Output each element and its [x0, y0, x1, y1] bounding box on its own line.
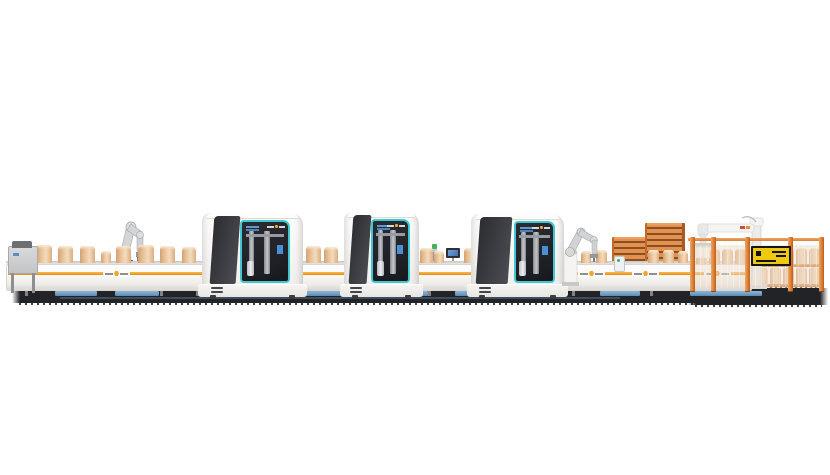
- machine-brand-mark: [267, 225, 285, 228]
- control-screen: [396, 244, 404, 255]
- tool-column: [533, 232, 539, 274]
- brand-mark-conveyor: [632, 270, 659, 277]
- blue-bin: [55, 291, 97, 296]
- machine-foot: [479, 295, 485, 299]
- product-box: [58, 246, 73, 263]
- product-box: [101, 251, 111, 263]
- interior-logo: [246, 226, 259, 231]
- cnc-machine: [202, 213, 303, 297]
- gantry-beam: [519, 235, 550, 238]
- product-box: [36, 245, 52, 263]
- operator-monitor: [446, 248, 460, 258]
- vent-slot: [350, 291, 362, 293]
- brand-hexagon-icon: [114, 271, 119, 276]
- cobot-gripper: [590, 254, 598, 258]
- machine-foot: [352, 295, 358, 299]
- warning-sign-pictogram: [756, 251, 761, 256]
- machine-brand-mark: [532, 226, 550, 229]
- brand-bar: [532, 227, 539, 229]
- monitor-screen: [448, 250, 458, 256]
- machine-window: [514, 221, 555, 283]
- machine-dark-panel: [476, 217, 512, 284]
- fence-mesh-panel: [792, 245, 819, 288]
- tool-column: [264, 231, 270, 274]
- brand-bar: [634, 273, 642, 275]
- brand-bar: [387, 225, 394, 227]
- machine-foot: [405, 295, 411, 299]
- vent-slot: [479, 291, 491, 293]
- product-box: [663, 250, 674, 263]
- brand-bar: [649, 273, 657, 275]
- machine-foot: [289, 295, 295, 299]
- fence-top-rail: [688, 238, 824, 241]
- warning-sign-text-bar: [772, 251, 786, 253]
- brand-hexagon-icon: [643, 271, 648, 276]
- infeed-station: [8, 246, 38, 274]
- machine-dark-panel: [348, 215, 371, 284]
- brand-orange-dot: [540, 226, 543, 229]
- production-line-render: [0, 0, 830, 475]
- product-box: [420, 248, 433, 263]
- blue-bin: [600, 291, 640, 296]
- control-screen: [276, 244, 284, 255]
- cobot-pedestal: [564, 254, 577, 284]
- product-box: [648, 250, 659, 263]
- workpiece-cylinder: [519, 261, 526, 276]
- brand-bar: [120, 273, 128, 275]
- scanner-station: [614, 256, 625, 272]
- brand-bar: [399, 225, 405, 227]
- fence-mesh-panel: [694, 245, 711, 288]
- fence-mesh-panel: [715, 245, 745, 288]
- product-box: [138, 245, 154, 263]
- workpiece-cylinder: [247, 261, 254, 276]
- fence-post: [690, 237, 695, 292]
- infeed-hopper: [12, 241, 32, 248]
- machine-dark-panel: [210, 216, 241, 284]
- brand-bar: [267, 226, 274, 228]
- machine-foot: [210, 295, 216, 299]
- machine-brand-mark: [387, 224, 405, 227]
- brand-bar: [279, 226, 285, 228]
- vent-slot: [211, 291, 223, 293]
- brand-orange-dot: [395, 224, 398, 227]
- brand-orange-dot: [275, 225, 278, 228]
- vent-slot: [479, 287, 491, 289]
- cobot-arm-2: [558, 224, 610, 288]
- fence-post: [711, 237, 716, 292]
- blue-bin: [115, 291, 159, 296]
- warning-sign-text-bar: [756, 260, 776, 262]
- gantry-beam: [376, 233, 405, 236]
- product-box: [324, 247, 338, 263]
- machine-foot: [550, 295, 556, 299]
- vent-slot: [350, 287, 362, 289]
- product-box: [160, 246, 175, 263]
- gantry-beam: [246, 234, 284, 237]
- product-box: [80, 246, 95, 263]
- product-box: [306, 246, 321, 263]
- workpiece-cylinder: [377, 261, 384, 276]
- brand-bar: [105, 273, 113, 275]
- infeed-leg: [32, 273, 35, 293]
- product-box: [434, 251, 444, 263]
- fence-post: [819, 237, 824, 292]
- status-light-green: [617, 259, 620, 262]
- machine-window: [240, 220, 290, 283]
- product-box: [116, 246, 131, 263]
- control-screen: [541, 245, 549, 256]
- brand-mark-conveyor: [103, 270, 130, 277]
- machine-window: [371, 219, 410, 283]
- vent-slot: [211, 287, 223, 289]
- product-box: [182, 247, 196, 263]
- cnc-machine: [471, 214, 564, 297]
- brand-bar: [544, 227, 550, 229]
- warning-sign-text-bar: [776, 255, 786, 257]
- tool-column: [390, 230, 396, 274]
- cnc-machine: [344, 212, 419, 297]
- fence-post: [745, 237, 750, 292]
- warning-sign: [751, 246, 791, 266]
- infeed-leg: [11, 273, 14, 293]
- infeed-label: [13, 253, 19, 256]
- floor-reflection: [60, 297, 620, 299]
